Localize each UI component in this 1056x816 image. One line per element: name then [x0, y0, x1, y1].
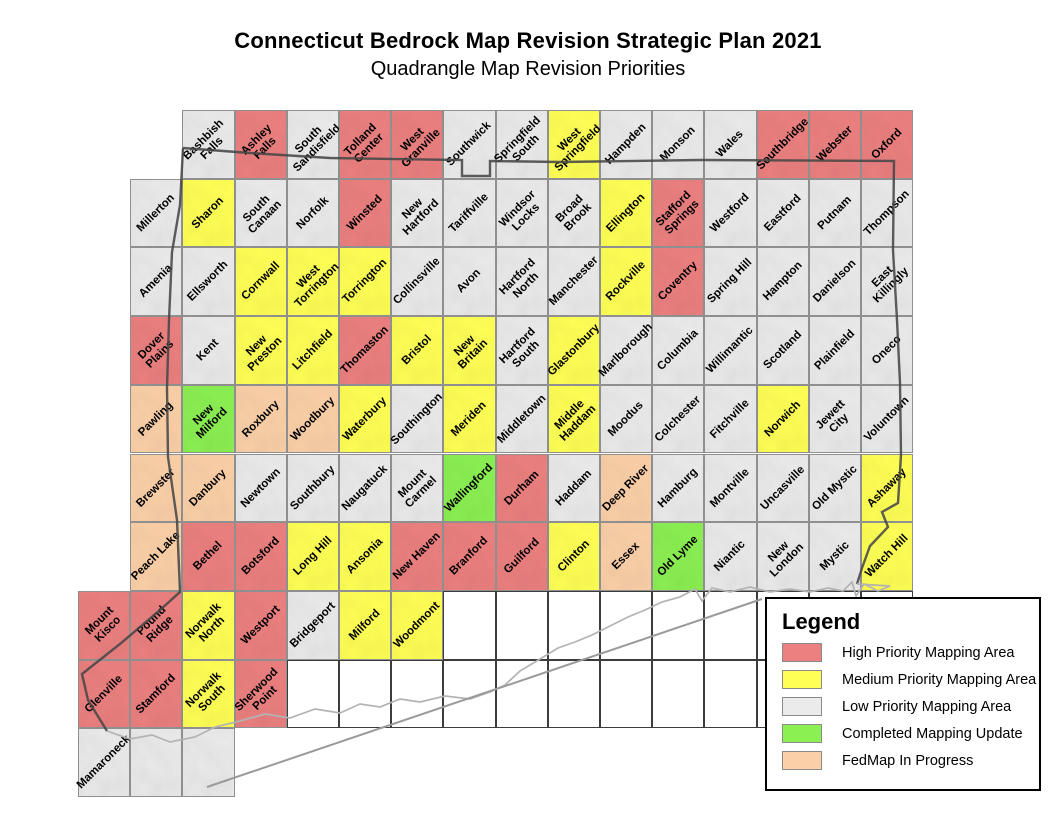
hillshade-texture: [601, 523, 651, 590]
legend-label: FedMap In Progress: [842, 753, 973, 769]
quad-essex: Essex: [600, 522, 652, 591]
quad-watch-hill: Watch Hill: [861, 522, 913, 591]
legend-label: High Priority Mapping Area: [842, 645, 1014, 661]
hillshade-texture: [705, 523, 755, 590]
hillshade-texture: [183, 523, 233, 590]
hillshade-texture: [601, 386, 651, 453]
quad-new-milford: New Milford: [182, 385, 234, 454]
empty-grid-cell: [704, 591, 756, 660]
hillshade-texture: [288, 317, 338, 384]
hillshade-texture: [79, 592, 129, 659]
quad-new-london: New London: [757, 522, 809, 591]
quad-oxford: Oxford: [861, 110, 913, 179]
quad-clinton: Clinton: [548, 522, 600, 591]
quad-westport: Westport: [235, 591, 287, 660]
hillshade-texture: [549, 317, 599, 384]
quad-oneco: Oneco: [861, 316, 913, 385]
hillshade-texture: [497, 317, 547, 384]
hillshade-texture: [236, 180, 286, 247]
quad-willimantic: Willimantic: [704, 316, 756, 385]
hillshade-texture: [758, 317, 808, 384]
quad-danbury: Danbury: [182, 454, 234, 523]
hillshade-texture: [601, 111, 651, 178]
hillshade-texture: [392, 455, 442, 522]
hillshade-texture: [444, 180, 494, 247]
quad-sharon: Sharon: [182, 179, 234, 248]
hillshade-texture: [340, 455, 390, 522]
quad-naugatuck: Naugatuck: [339, 454, 391, 523]
hillshade-texture: [131, 729, 181, 796]
hillshade-texture: [392, 592, 442, 659]
quad-kent: Kent: [182, 316, 234, 385]
quad-guilford: Guilford: [496, 522, 548, 591]
quad-montville: Montville: [704, 454, 756, 523]
hillshade-texture: [758, 455, 808, 522]
quad-bridgeport: Bridgeport: [287, 591, 339, 660]
quad-columbia: Columbia: [652, 316, 704, 385]
quad-scotland: Scotland: [757, 316, 809, 385]
legend-item-fedmap-in-progress: FedMap In Progress: [782, 751, 1039, 770]
hillshade-texture: [340, 180, 390, 247]
quad-branford: Branford: [443, 522, 495, 591]
quad-mount-carmel: Mount Carmel: [391, 454, 443, 523]
hillshade-texture: [549, 111, 599, 178]
quad-wales: Wales: [704, 110, 756, 179]
hillshade-texture: [288, 248, 338, 315]
hillshade-texture: [183, 386, 233, 453]
quad-southington: Southington: [391, 385, 443, 454]
hillshade-texture: [653, 386, 703, 453]
quad-west-granville: West Granville: [391, 110, 443, 179]
hillshade-texture: [549, 248, 599, 315]
quad-norwalk-north: Norwalk North: [182, 591, 234, 660]
hillshade-texture: [79, 729, 129, 796]
quad-ellington: Ellington: [600, 179, 652, 248]
hillshade-texture: [705, 455, 755, 522]
quad-amenia: Amenia: [130, 247, 182, 316]
hillshade-texture: [340, 523, 390, 590]
quad-stafford-springs: Stafford Springs: [652, 179, 704, 248]
legend-label: Medium Priority Mapping Area: [842, 672, 1036, 688]
hillshade-texture: [705, 180, 755, 247]
hillshade-texture: [705, 111, 755, 178]
hillshade-texture: [131, 317, 181, 384]
quad-spring-hill: Spring Hill: [704, 247, 756, 316]
hillshade-texture: [340, 386, 390, 453]
quad-pawling: Pawling: [130, 385, 182, 454]
quad-mystic: Mystic: [809, 522, 861, 591]
hillshade-texture: [131, 592, 181, 659]
quad-pound-ridge: Pound Ridge: [130, 591, 182, 660]
hillshade-texture: [131, 455, 181, 522]
quad-ashley-falls: Ashley Falls: [235, 110, 287, 179]
hillshade-texture: [549, 180, 599, 247]
legend-label: Completed Mapping Update: [842, 726, 1023, 742]
quad-old-lyme: Old Lyme: [652, 522, 704, 591]
quad-woodmont: Woodmont: [391, 591, 443, 660]
hillshade-texture: [810, 317, 860, 384]
quad-eastford: Eastford: [757, 179, 809, 248]
hillshade-texture: [392, 317, 442, 384]
hillshade-texture: [183, 180, 233, 247]
title-block: Connecticut Bedrock Map Revision Strateg…: [0, 28, 1056, 81]
hillshade-texture: [810, 386, 860, 453]
quad-norwich: Norwich: [757, 385, 809, 454]
empty-grid-cell: [548, 660, 600, 729]
hillshade-texture: [444, 317, 494, 384]
empty-grid-cell: [496, 591, 548, 660]
hillshade-texture: [392, 248, 442, 315]
quad-plainfield: Plainfield: [809, 316, 861, 385]
quad-rockville: Rockville: [600, 247, 652, 316]
hillshade-texture: [862, 317, 912, 384]
quad-thompson: Thompson: [861, 179, 913, 248]
empty-grid-cell: [443, 591, 495, 660]
hillshade-texture: [862, 455, 912, 522]
hillshade-texture: [131, 248, 181, 315]
legend-item-high-priority-mapping-area: High Priority Mapping Area: [782, 643, 1039, 662]
hillshade-texture: [497, 523, 547, 590]
quad-bristol: Bristol: [391, 316, 443, 385]
quad-west-torrington: West Torrington: [287, 247, 339, 316]
quad-manchester: Manchester: [548, 247, 600, 316]
hillshade-texture: [340, 592, 390, 659]
hillshade-texture: [236, 661, 286, 728]
hillshade-texture: [549, 523, 599, 590]
hillshade-texture: [705, 248, 755, 315]
hillshade-texture: [653, 523, 703, 590]
hillshade-texture: [236, 386, 286, 453]
quad-jewett-city: Jewett City: [809, 385, 861, 454]
quad-new-haven: New Haven: [391, 522, 443, 591]
hillshade-texture: [236, 523, 286, 590]
hillshade-texture: [444, 111, 494, 178]
hillshade-texture: [810, 180, 860, 247]
hillshade-texture: [183, 455, 233, 522]
quad-coventry: Coventry: [652, 247, 704, 316]
quad-thomaston: Thomaston: [339, 316, 391, 385]
hillshade-texture: [236, 248, 286, 315]
hillshade-texture: [183, 729, 233, 796]
hillshade-texture: [340, 248, 390, 315]
hillshade-texture: [862, 180, 912, 247]
quad-uncasville: Uncasville: [757, 454, 809, 523]
hillshade-texture: [131, 180, 181, 247]
quad-south-canaan: South Canaan: [235, 179, 287, 248]
quad-broad-brook: Broad Brook: [548, 179, 600, 248]
hillshade-texture: [497, 111, 547, 178]
quad-southbridge: Southbridge: [757, 110, 809, 179]
legend-items: High Priority Mapping AreaMedium Priorit…: [767, 643, 1039, 770]
hillshade-texture: [392, 180, 442, 247]
empty-grid-cell: [548, 591, 600, 660]
hillshade-texture: [392, 111, 442, 178]
quad-haddam: Haddam: [548, 454, 600, 523]
quad-winsted: Winsted: [339, 179, 391, 248]
hillshade-texture: [810, 111, 860, 178]
empty-grid-cell: [287, 660, 339, 729]
quad-collinsville: Collinsville: [391, 247, 443, 316]
quad-deep-river: Deep River: [600, 454, 652, 523]
quad-moodus: Moodus: [600, 385, 652, 454]
hillshade-texture: [497, 180, 547, 247]
quad-windsor-locks: Windsor Locks: [496, 179, 548, 248]
quad-botsford: Botsford: [235, 522, 287, 591]
hillshade-texture: [183, 248, 233, 315]
legend-swatch-c: [782, 724, 822, 743]
quad-brewster: Brewster: [130, 454, 182, 523]
hillshade-texture: [601, 180, 651, 247]
hillshade-texture: [549, 455, 599, 522]
quad-ellsworth: Ellsworth: [182, 247, 234, 316]
quad-east-killingly: East Killingly: [861, 247, 913, 316]
quad-dover-plains: Dover Plains: [130, 316, 182, 385]
quad-stamford: Stamford: [130, 660, 182, 729]
quad-woodbury: Woodbury: [287, 385, 339, 454]
empty-grid-cell: [600, 591, 652, 660]
hillshade-texture: [183, 661, 233, 728]
legend-swatch-m: [782, 670, 822, 689]
legend-swatch-h: [782, 643, 822, 662]
empty-grid-cell: [391, 660, 443, 729]
quad-middletown: Middletown: [496, 385, 548, 454]
quad-marlborough: Marlborough: [600, 316, 652, 385]
hillshade-texture: [497, 248, 547, 315]
empty-grid-cell: [443, 660, 495, 729]
legend-item-completed-mapping-update: Completed Mapping Update: [782, 724, 1039, 743]
quad-torrington: Torrington: [339, 247, 391, 316]
hillshade-texture: [862, 248, 912, 315]
hillshade-texture: [236, 111, 286, 178]
quad-milford: Milford: [339, 591, 391, 660]
hillshade-texture: [862, 111, 912, 178]
hillshade-texture: [549, 386, 599, 453]
quad-blank-r10c2: [130, 728, 182, 797]
quad-fitchville: Fitchville: [704, 385, 756, 454]
hillshade-texture: [392, 386, 442, 453]
quad-tolland-center: Tolland Center: [339, 110, 391, 179]
hillshade-texture: [601, 455, 651, 522]
quad-norfolk: Norfolk: [287, 179, 339, 248]
quad-mount-kisco: Mount Kisco: [78, 591, 130, 660]
hillshade-texture: [131, 386, 181, 453]
quad-hampden: Hampden: [600, 110, 652, 179]
hillshade-texture: [601, 317, 651, 384]
hillshade-texture: [758, 523, 808, 590]
empty-grid-cell: [600, 660, 652, 729]
hillshade-texture: [444, 386, 494, 453]
hillshade-texture: [444, 523, 494, 590]
hillshade-texture: [862, 386, 912, 453]
quad-bashbish-falls: Bashbish Falls: [182, 110, 234, 179]
quad-wallingford: Wallingford: [443, 454, 495, 523]
hillshade-texture: [183, 592, 233, 659]
hillshade-texture: [236, 592, 286, 659]
hillshade-texture: [340, 111, 390, 178]
page-title: Connecticut Bedrock Map Revision Strateg…: [0, 28, 1056, 54]
hillshade-texture: [444, 248, 494, 315]
quad-avon: Avon: [443, 247, 495, 316]
quad-blank-r10c3: [182, 728, 234, 797]
hillshade-texture: [288, 523, 338, 590]
quad-litchfield: Litchfield: [287, 316, 339, 385]
quad-west-springfield: West Springfield: [548, 110, 600, 179]
hillshade-texture: [288, 180, 338, 247]
hillshade-texture: [705, 386, 755, 453]
hillshade-texture: [653, 248, 703, 315]
quad-hamburg: Hamburg: [652, 454, 704, 523]
empty-grid-cell: [652, 591, 704, 660]
hillshade-texture: [236, 317, 286, 384]
quad-hartford-north: Hartford North: [496, 247, 548, 316]
quad-norwalk-south: Norwalk South: [182, 660, 234, 729]
quad-millerton: Millerton: [130, 179, 182, 248]
quad-bethel: Bethel: [182, 522, 234, 591]
hillshade-texture: [497, 386, 547, 453]
hillshade-texture: [758, 386, 808, 453]
hillshade-texture: [236, 455, 286, 522]
hillshade-texture: [653, 317, 703, 384]
hillshade-texture: [758, 180, 808, 247]
hillshade-texture: [810, 523, 860, 590]
quad-new-hartford: New Hartford: [391, 179, 443, 248]
quad-glastonbury: Glastonbury: [548, 316, 600, 385]
legend-item-low-priority-mapping-area: Low Priority Mapping Area: [782, 697, 1039, 716]
quad-tariffville: Tariffville: [443, 179, 495, 248]
hillshade-texture: [758, 111, 808, 178]
quad-waterbury: Waterbury: [339, 385, 391, 454]
hillshade-texture: [653, 180, 703, 247]
quad-old-mystic: Old Mystic: [809, 454, 861, 523]
empty-grid-cell: [704, 660, 756, 729]
quad-danielson: Danielson: [809, 247, 861, 316]
hillshade-texture: [392, 523, 442, 590]
hillshade-texture: [288, 455, 338, 522]
hillshade-texture: [810, 248, 860, 315]
hillshade-texture: [288, 386, 338, 453]
hillshade-texture: [183, 317, 233, 384]
quad-southbury: Southbury: [287, 454, 339, 523]
hillshade-texture: [340, 317, 390, 384]
hillshade-texture: [497, 455, 547, 522]
quad-newtown: Newtown: [235, 454, 287, 523]
legend-title: Legend: [782, 609, 1039, 635]
quad-sherwood-point: Sherwood Point: [235, 660, 287, 729]
quad-putnam: Putnam: [809, 179, 861, 248]
quad-hampton: Hampton: [757, 247, 809, 316]
quad-durham: Durham: [496, 454, 548, 523]
quad-south-sandisfield: South Sandisfield: [287, 110, 339, 179]
quad-mamaroneck: Mamaroneck: [78, 728, 130, 797]
hillshade-texture: [183, 111, 233, 178]
hillshade-texture: [79, 661, 129, 728]
quad-southwick: Southwick: [443, 110, 495, 179]
hillshade-texture: [810, 455, 860, 522]
quad-webster: Webster: [809, 110, 861, 179]
legend: Legend High Priority Mapping AreaMedium …: [765, 597, 1041, 791]
quad-middle-haddam: Middle Haddam: [548, 385, 600, 454]
quad-ansonia: Ansonia: [339, 522, 391, 591]
legend-label: Low Priority Mapping Area: [842, 699, 1011, 715]
quad-cornwall: Cornwall: [235, 247, 287, 316]
quad-roxbury: Roxbury: [235, 385, 287, 454]
quad-new-britain: New Britain: [443, 316, 495, 385]
legend-swatch-l: [782, 697, 822, 716]
hillshade-texture: [705, 317, 755, 384]
quad-new-preston: New Preston: [235, 316, 287, 385]
quad-westford: Westford: [704, 179, 756, 248]
hillshade-texture: [653, 455, 703, 522]
page-subtitle: Quadrangle Map Revision Priorities: [0, 58, 1056, 81]
quad-hartford-south: Hartford South: [496, 316, 548, 385]
quad-glenville: Glenville: [78, 660, 130, 729]
quad-ashaway: Ashaway: [861, 454, 913, 523]
quad-peach-lake: Peach Lake: [130, 522, 182, 591]
quad-voluntown: Voluntown: [861, 385, 913, 454]
legend-item-medium-priority-mapping-area: Medium Priority Mapping Area: [782, 670, 1039, 689]
hillshade-texture: [653, 111, 703, 178]
map-figure: Bashbish FallsAshley FallsSouth Sandisfi…: [0, 0, 1056, 816]
legend-swatch-f: [782, 751, 822, 770]
hillshade-texture: [758, 248, 808, 315]
empty-grid-cell: [652, 660, 704, 729]
quad-monson: Monson: [652, 110, 704, 179]
empty-grid-cell: [339, 660, 391, 729]
hillshade-texture: [131, 661, 181, 728]
hillshade-texture: [288, 592, 338, 659]
hillshade-texture: [288, 111, 338, 178]
quad-long-hill: Long Hill: [287, 522, 339, 591]
hillshade-texture: [444, 455, 494, 522]
empty-grid-cell: [496, 660, 548, 729]
quad-colchester: Colchester: [652, 385, 704, 454]
quad-springfield-south: Springfield South: [496, 110, 548, 179]
hillshade-texture: [131, 523, 181, 590]
hillshade-texture: [862, 523, 912, 590]
quad-niantic: Niantic: [704, 522, 756, 591]
hillshade-texture: [601, 248, 651, 315]
quad-meriden: Meriden: [443, 385, 495, 454]
